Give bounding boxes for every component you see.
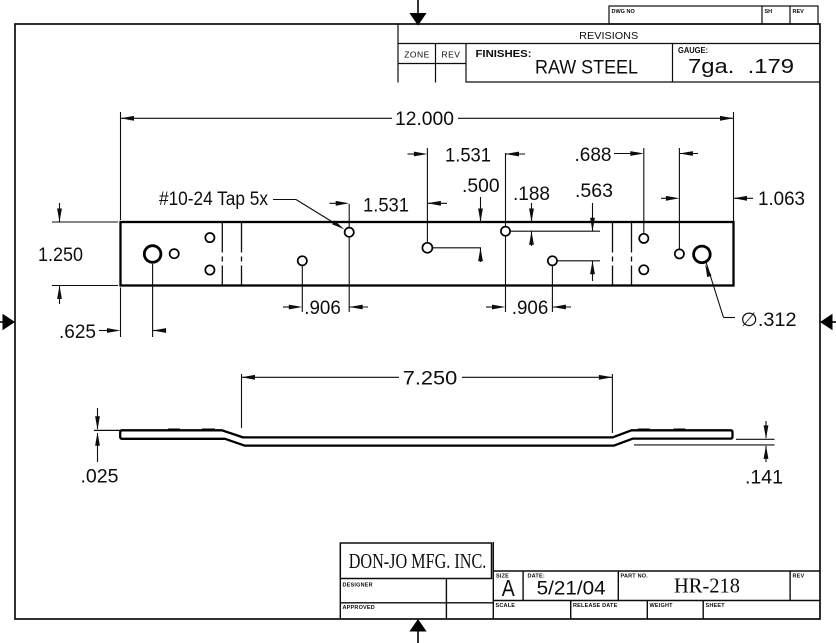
svg-text:.500: .500 (462, 176, 500, 197)
svg-text:12.000: 12.000 (395, 109, 454, 130)
svg-text:.688: .688 (575, 145, 612, 166)
svg-text:7ga. .179: 7ga. .179 (688, 56, 794, 78)
svg-text:REVISIONS: REVISIONS (579, 30, 638, 42)
svg-text:APPROVED: APPROVED (343, 605, 375, 611)
svg-text:RAW STEEL: RAW STEEL (535, 57, 638, 79)
svg-text:5/21/04: 5/21/04 (537, 578, 606, 600)
svg-text:.025: .025 (81, 467, 119, 488)
svg-text:DESIGNER: DESIGNER (343, 583, 373, 589)
svg-text:∅.312: ∅.312 (741, 310, 797, 331)
svg-text:.906: .906 (512, 298, 549, 319)
svg-text:.906: .906 (304, 298, 341, 319)
svg-text:A: A (502, 575, 516, 601)
svg-text:SCALE: SCALE (496, 603, 516, 609)
svg-text:REV: REV (793, 9, 805, 15)
svg-text:DWG NO: DWG NO (612, 9, 636, 15)
svg-text:WEIGHT: WEIGHT (650, 603, 674, 609)
svg-text:ZONE: ZONE (404, 50, 430, 60)
svg-text:SHEET: SHEET (706, 603, 726, 609)
svg-text:1.250: 1.250 (38, 245, 83, 266)
svg-text:1.531: 1.531 (363, 196, 409, 217)
svg-text:FINISHES:: FINISHES: (476, 49, 532, 60)
svg-text:#10-24 Tap 5x: #10-24 Tap 5x (159, 189, 268, 210)
svg-text:.563: .563 (575, 181, 613, 202)
svg-text:HR-218: HR-218 (674, 574, 740, 598)
svg-text:1.531: 1.531 (445, 146, 491, 167)
svg-text:.625: .625 (59, 322, 96, 343)
svg-text:REV: REV (793, 574, 805, 580)
svg-text:GAUGE:: GAUGE: (678, 45, 708, 55)
svg-text:SH: SH (765, 9, 773, 15)
svg-text:.188: .188 (513, 184, 550, 205)
svg-text:RELEASE DATE: RELEASE DATE (573, 603, 618, 609)
svg-text:PART NO.: PART NO. (621, 574, 649, 580)
svg-text:REV: REV (442, 50, 461, 60)
svg-text:7.250: 7.250 (403, 369, 458, 390)
svg-text:DON-JO MFG. INC.: DON-JO MFG. INC. (349, 549, 487, 573)
svg-text:.141: .141 (745, 468, 783, 489)
svg-text:1.063: 1.063 (758, 189, 805, 210)
